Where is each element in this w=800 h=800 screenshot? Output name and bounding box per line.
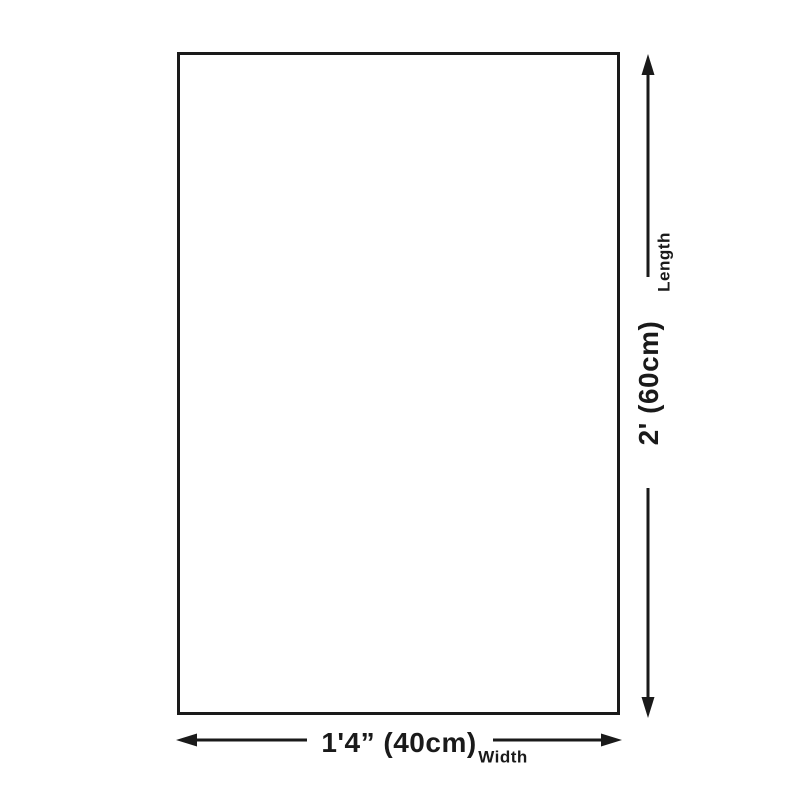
width-arrowhead-right	[601, 734, 622, 747]
dimension-diagram: 2' (60cm) Length 1'4” (40cm) Width	[0, 0, 800, 800]
length-arrowhead-bottom	[642, 697, 655, 718]
dimension-arrows	[0, 0, 800, 800]
length-caption-label: Length	[656, 232, 673, 292]
width-value-label: 1'4” (40cm)	[321, 729, 476, 757]
width-caption-label: Width	[478, 749, 528, 766]
length-arrowhead-top	[642, 54, 655, 75]
width-arrowhead-left	[176, 734, 197, 747]
length-value-label: 2' (60cm)	[635, 321, 663, 446]
